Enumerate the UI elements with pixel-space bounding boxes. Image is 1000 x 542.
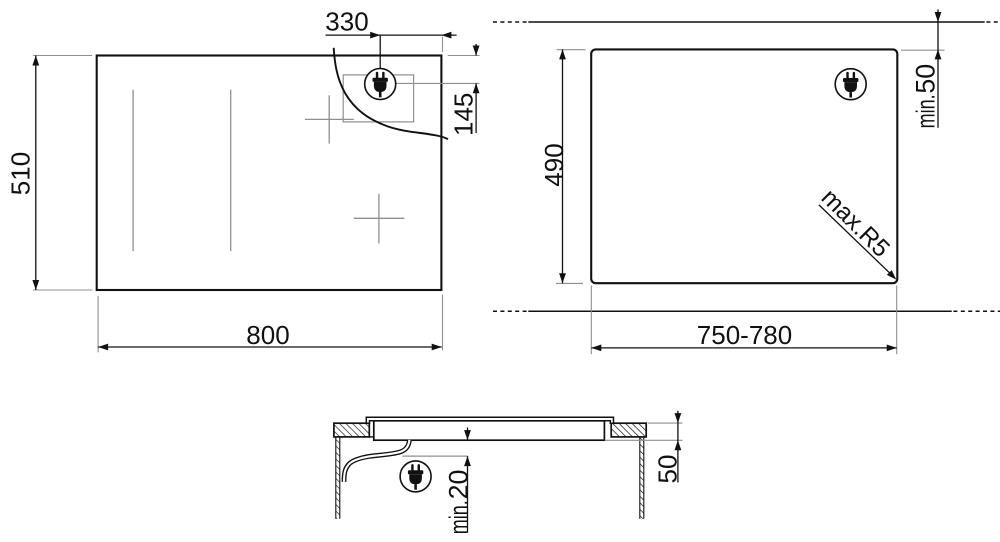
svg-text:50: 50	[652, 455, 682, 484]
svg-text:800: 800	[246, 320, 289, 350]
svg-text:min.: min.	[444, 500, 474, 534]
svg-text:min.: min.	[911, 94, 941, 128]
svg-text:750-780: 750-780	[697, 320, 792, 350]
svg-text:490: 490	[539, 143, 569, 186]
svg-text:145: 145	[448, 93, 478, 136]
svg-text:20: 20	[444, 470, 474, 500]
svg-text:50: 50	[911, 64, 941, 94]
svg-text:510: 510	[6, 152, 36, 195]
svg-text:330: 330	[325, 7, 368, 37]
